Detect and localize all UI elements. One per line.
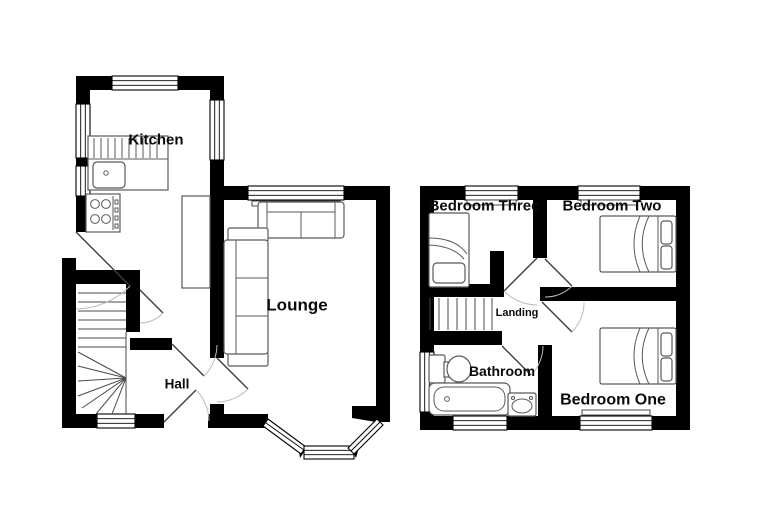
first-floor-plan: Bedroom Three Bedroom Two Bedroom One Ba… xyxy=(420,186,690,430)
bath xyxy=(429,383,510,415)
bedroom-one-window xyxy=(580,416,652,430)
bedroom-one-door xyxy=(542,302,584,332)
bed-double-bedroom-two xyxy=(600,216,676,272)
front-door xyxy=(164,390,209,422)
ground-floor-stairs xyxy=(78,293,126,414)
kitchen-window-top xyxy=(112,76,178,90)
room-label-hall: Hall xyxy=(165,377,190,392)
bed-double-bedroom-one xyxy=(600,328,676,384)
room-label-bedroom-one: Bedroom One xyxy=(560,392,666,409)
kitchen-window-right xyxy=(210,100,224,160)
sofa-two-seat xyxy=(258,202,344,238)
room-label-bathroom: Bathroom xyxy=(469,363,535,379)
bed-single xyxy=(429,213,469,287)
bedroom-three-door xyxy=(504,258,537,305)
toilet xyxy=(429,355,471,383)
room-label-bedroom-two: Bedroom Two xyxy=(563,198,662,215)
sofa-three-seat xyxy=(224,228,268,366)
floorplan-canvas: Kitchen Lounge Hall xyxy=(0,0,768,506)
room-label-bedroom-three: Bedroom Three xyxy=(429,198,540,215)
basin xyxy=(508,393,536,416)
bedroom-one-sill xyxy=(582,410,650,415)
room-label-kitchen: Kitchen xyxy=(128,132,183,149)
kitchen-worktop xyxy=(182,196,210,288)
room-label-lounge: Lounge xyxy=(266,296,327,315)
floorplan-page: Kitchen Lounge Hall xyxy=(0,0,768,506)
bay-window xyxy=(263,419,383,459)
kitchen-door xyxy=(140,290,163,323)
hall-window-bottom xyxy=(97,414,135,428)
bathroom-window-bottom xyxy=(453,416,507,430)
lounge-window-top xyxy=(248,186,344,200)
ground-floor-plan: Kitchen Lounge Hall xyxy=(62,76,390,459)
first-floor-stairs xyxy=(430,298,492,330)
hob xyxy=(86,194,120,232)
room-label-landing: Landing xyxy=(496,307,539,319)
